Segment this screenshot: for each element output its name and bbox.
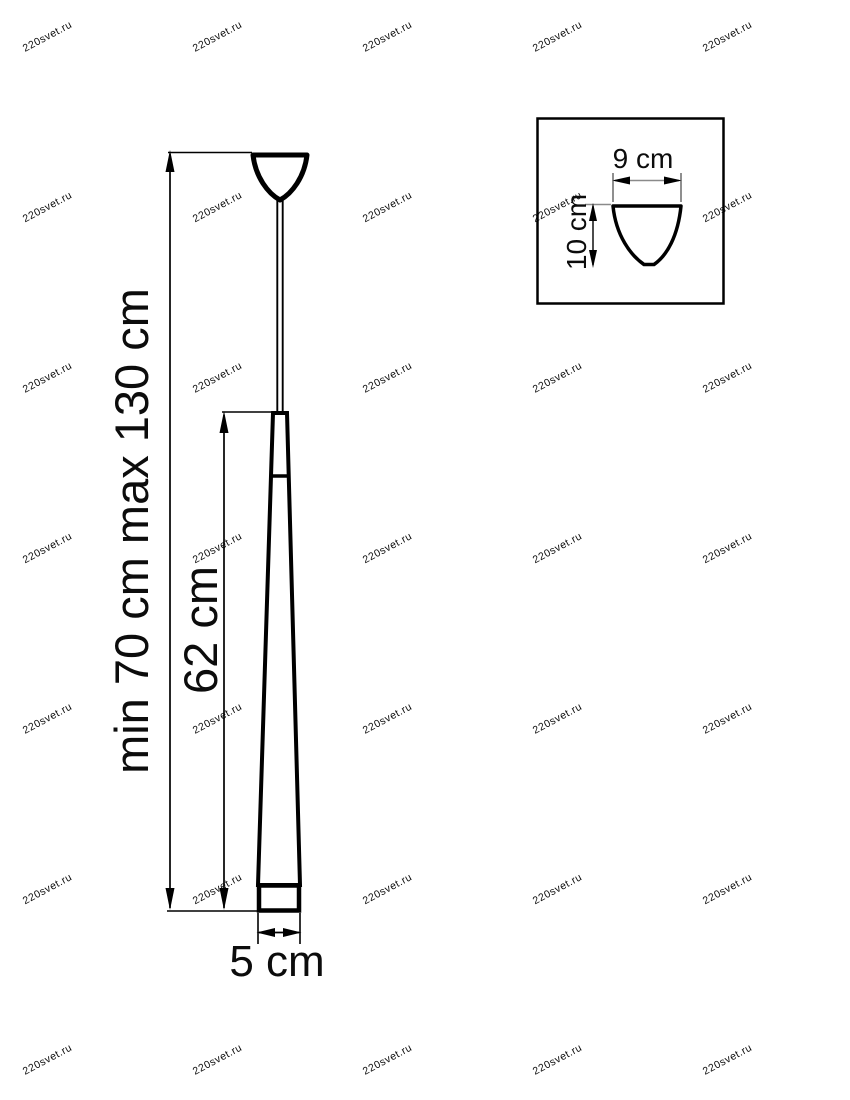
- dimension-canopy-width: 9 cm: [612, 143, 682, 202]
- diagram-svg: 220svet.ru220svet.ru220svet.ru220svet.ru…: [0, 0, 850, 1100]
- shade-height-label: 62 cm: [174, 566, 227, 694]
- arrowhead-down-icon: [166, 888, 175, 910]
- watermark-text: 220svet.ru: [361, 530, 414, 566]
- watermark-text: 220svet.ru: [531, 871, 584, 907]
- watermark-text: 220svet.ru: [701, 530, 754, 566]
- dimension-canopy-height: 10 cm: [561, 194, 611, 270]
- watermark-text: 220svet.ru: [191, 1042, 244, 1078]
- watermark-text: 220svet.ru: [531, 19, 584, 55]
- watermark-text: 220svet.ru: [191, 360, 244, 396]
- dimension-shade-width: 5 cm: [229, 913, 324, 986]
- watermark-text: 220svet.ru: [531, 360, 584, 396]
- ceiling-canopy: [253, 155, 307, 200]
- watermark-text: 220svet.ru: [21, 1042, 74, 1078]
- watermark-text: 220svet.ru: [191, 19, 244, 55]
- watermark-text: 220svet.ru: [191, 530, 244, 566]
- pendant-lamp-dimension-diagram: 220svet.ru220svet.ru220svet.ru220svet.ru…: [0, 0, 850, 1100]
- canopy-detail-box: 9 cm 10 cm: [538, 119, 724, 304]
- dimension-shade-height: 62 cm: [174, 411, 271, 910]
- watermark-text: 220svet.ru: [361, 871, 414, 907]
- canopy-detail-shape: [613, 206, 681, 265]
- main-drawing: min 70 cm max 130 cm: [105, 150, 325, 986]
- watermark-text: 220svet.ru: [21, 360, 74, 396]
- watermark-text: 220svet.ru: [531, 1042, 584, 1078]
- watermark-text: 220svet.ru: [361, 360, 414, 396]
- cone-shade-body: [258, 413, 300, 885]
- shade-bottom-ring: [259, 886, 299, 911]
- watermark-text: 220svet.ru: [191, 871, 244, 907]
- watermark-text: 220svet.ru: [191, 701, 244, 737]
- watermark-text: 220svet.ru: [531, 701, 584, 737]
- watermark-text: 220svet.ru: [701, 871, 754, 907]
- watermark-text: 220svet.ru: [701, 360, 754, 396]
- arrowhead-right-icon: [664, 177, 682, 185]
- watermark-text: 220svet.ru: [21, 871, 74, 907]
- watermark-text: 220svet.ru: [701, 189, 754, 225]
- canopy-height-label: 10 cm: [561, 194, 592, 270]
- watermark-text: 220svet.ru: [21, 19, 74, 55]
- watermark-text: 220svet.ru: [361, 701, 414, 737]
- arrowhead-left-icon: [612, 177, 630, 185]
- watermark-text: 220svet.ru: [21, 701, 74, 737]
- watermark-text: 220svet.ru: [21, 530, 74, 566]
- watermark-text: 220svet.ru: [191, 189, 244, 225]
- suspension-range-label: min 70 cm max 130 cm: [105, 288, 158, 774]
- watermark-text: 220svet.ru: [361, 1042, 414, 1078]
- dimension-suspension: min 70 cm max 130 cm: [105, 150, 257, 911]
- lamp-fixture: [253, 155, 307, 911]
- arrowhead-right-icon: [283, 928, 302, 937]
- watermark-text: 220svet.ru: [361, 19, 414, 55]
- watermark-text: 220svet.ru: [701, 19, 754, 55]
- arrowhead-up-icon: [220, 411, 229, 433]
- watermark-text: 220svet.ru: [701, 701, 754, 737]
- canopy-width-label: 9 cm: [613, 143, 674, 174]
- watermark-text: 220svet.ru: [361, 189, 414, 225]
- watermark-text: 220svet.ru: [701, 1042, 754, 1078]
- arrowhead-left-icon: [257, 928, 276, 937]
- arrowhead-down-icon: [220, 888, 229, 910]
- watermark-text: 220svet.ru: [531, 530, 584, 566]
- watermark-text: 220svet.ru: [21, 189, 74, 225]
- shade-width-label: 5 cm: [229, 937, 324, 986]
